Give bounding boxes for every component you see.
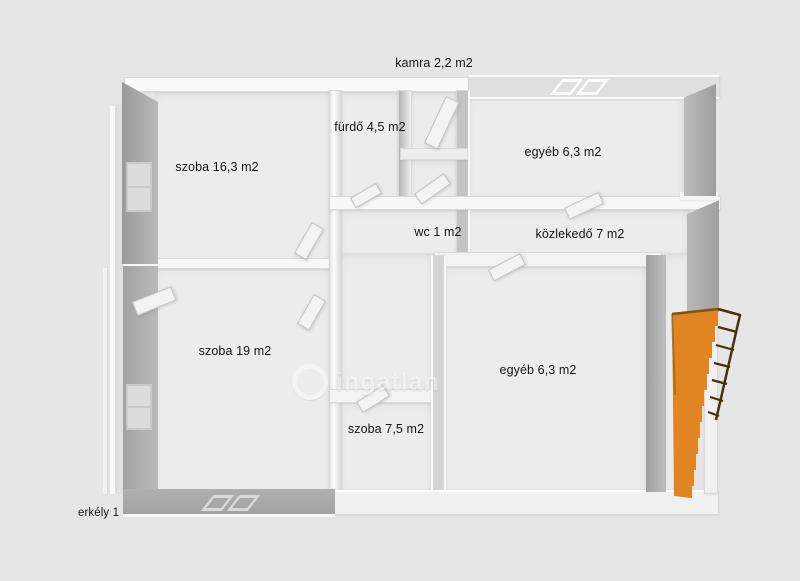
room-floor-furdo (340, 90, 402, 200)
window-icon (126, 162, 152, 212)
room-floor-szoba19 (155, 266, 332, 494)
floorplan-canvas: ingatlan kamra 2,2 m2 szoba 16,3 m2 fürd… (0, 0, 800, 581)
balcony-rail-lower (103, 268, 107, 494)
room-label-szoba19: szoba 19 m2 (199, 344, 272, 358)
wall-right-middle (687, 198, 719, 312)
hall-floor-horizontal (340, 208, 690, 255)
room-label-szoba75: szoba 7,5 m2 (348, 422, 424, 436)
room-label-kozlekedo: közlekedő 7 m2 (536, 227, 625, 241)
wall-center-vertical (329, 90, 342, 494)
wall-left-upper (122, 82, 158, 264)
room-label-szoba16: szoba 16,3 m2 (175, 160, 258, 174)
room-floor-szoba75 (340, 400, 434, 492)
wall-kamra-bottom (400, 148, 468, 160)
wall-hall-top (329, 196, 721, 210)
room-label-furdo: fürdő 4,5 m2 (334, 120, 405, 134)
wall-furdo-right (398, 90, 412, 202)
window-icon (126, 384, 152, 430)
room-label-egyeb-top: egyéb 6,3 m2 (525, 145, 602, 159)
balcony-rail-upper (110, 106, 115, 494)
room-label-egyeb-mid: egyéb 6,3 m2 (500, 363, 577, 377)
wall-top-left (124, 77, 472, 92)
window-icon (207, 495, 254, 511)
room-label-erkely: erkély 1 (78, 507, 119, 519)
room-label-wc: wc 1 m2 (414, 225, 461, 239)
wall-szoba75-right (431, 255, 446, 494)
room-floor-egyeb-mid (442, 264, 648, 492)
room-label-kamra: kamra 2,2 m2 (395, 56, 473, 70)
wall-right-upper (684, 84, 716, 196)
window-icon (556, 79, 603, 95)
hall-floor-left-column (340, 253, 434, 393)
wall-bottom-szoba19 (123, 489, 335, 517)
stairs-icon (660, 300, 748, 510)
wall-egyeb-mid-top (434, 252, 662, 267)
